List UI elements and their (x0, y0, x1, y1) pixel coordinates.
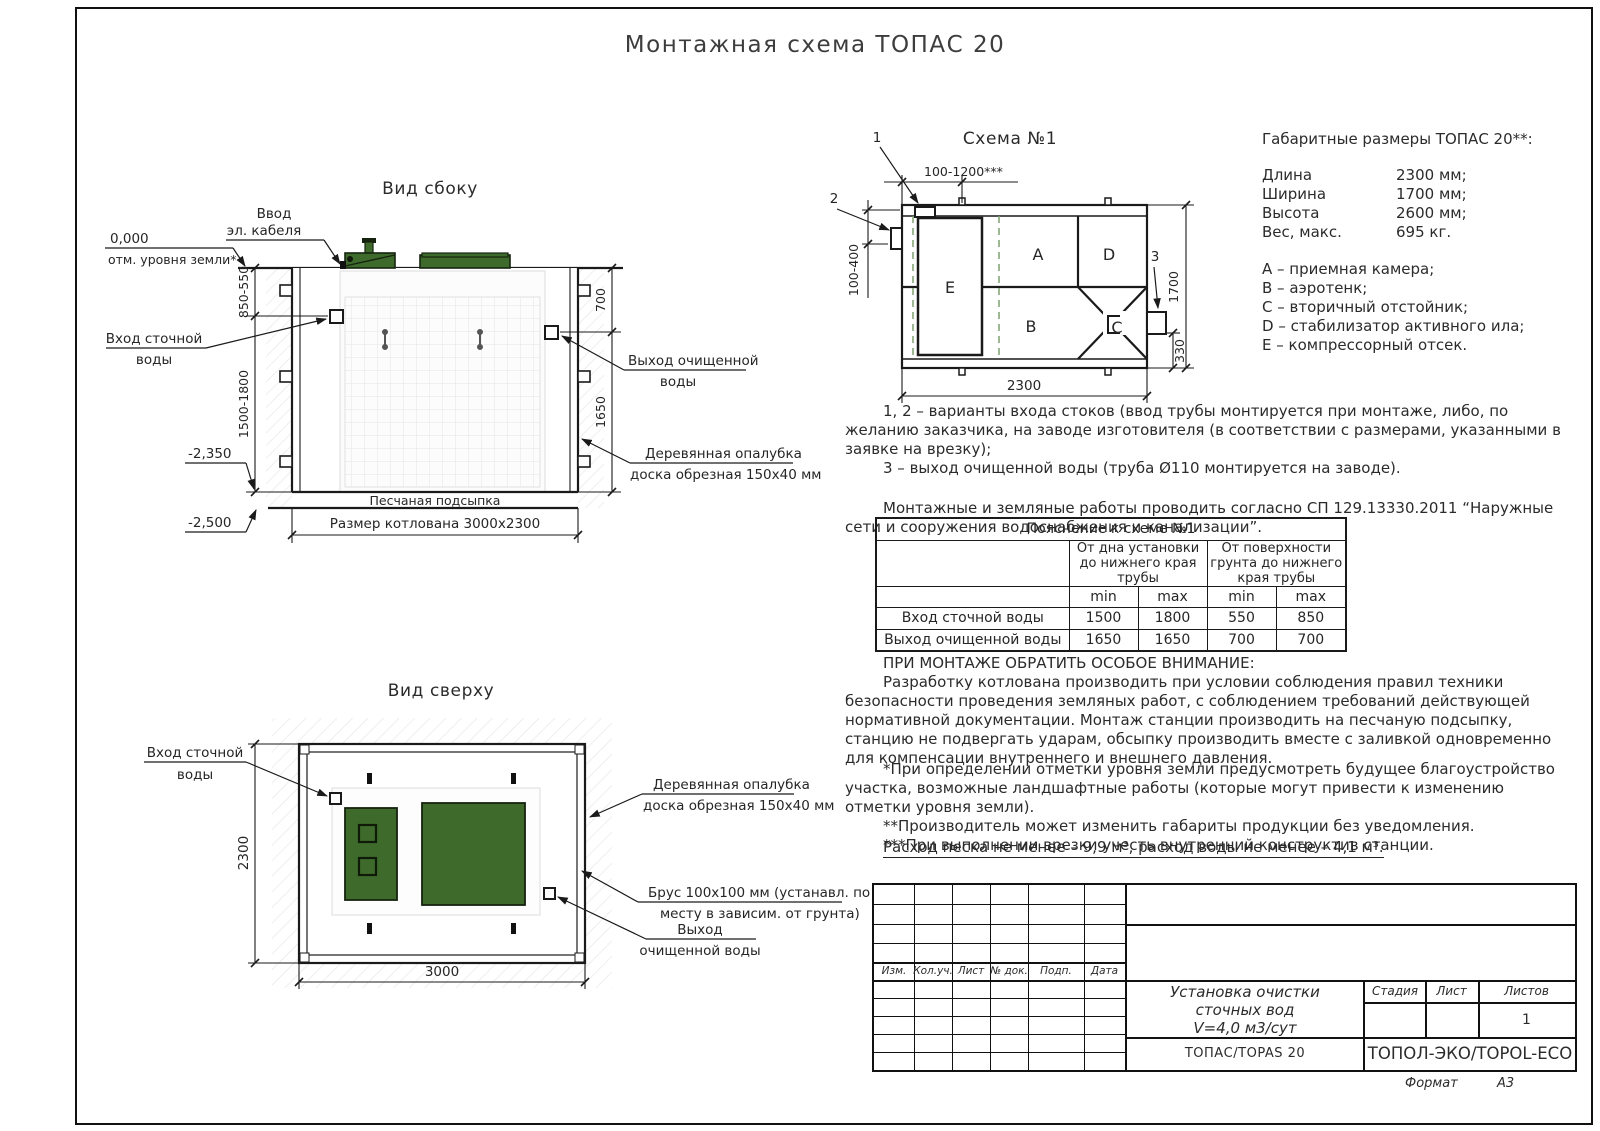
marker-3: 3 (1151, 249, 1160, 308)
svg-text:Ввод: Ввод (257, 206, 292, 222)
callout-formwork: Деревянная опалубка доска обрезная 150х4… (582, 439, 821, 483)
svg-text:2: 2 (830, 191, 839, 207)
attention-title: ПРИ МОНТАЖЕ ОБРАТИТЬ ОСОБОЕ ВНИМАНИЕ: (845, 654, 1565, 673)
explanation-table: Пояснение к схеме №1 От дна установки до… (875, 517, 1347, 652)
tank-lid-long-top (422, 803, 525, 905)
svg-text:доска обрезная 150х40 мм: доска обрезная 150х40 мм (643, 798, 834, 814)
overall-title: Габаритные размеры ТОПАС 20**: (1262, 130, 1572, 149)
tank-lid-small (340, 238, 395, 269)
drawing-sheet: Монтажная схема ТОПАС 20 Вид сбоку Вид с… (0, 0, 1600, 1131)
callout-cable-entry: Ввод эл. кабеля (226, 206, 340, 264)
svg-text:1: 1 (873, 130, 882, 146)
attention-block: ПРИ МОНТАЖЕ ОБРАТИТЬ ОСОБОЕ ВНИМАНИЕ: Ра… (845, 654, 1565, 768)
pit-size-label: Размер котлована 3000х2300 (330, 516, 540, 532)
stamp-company: ТОПОЛ-ЭКО/TOPOL-ECO (1365, 1037, 1575, 1070)
dim-outlet-330: 330 (1166, 329, 1187, 372)
compartment-c: C (1111, 318, 1122, 337)
table-row: Выход очищенной воды 1650 1650 700 700 (876, 629, 1346, 651)
stamp-header-list: Лист (952, 962, 990, 980)
level-2500-value: -2,500 (188, 515, 232, 531)
svg-text:эл. кабеля: эл. кабеля (227, 223, 301, 239)
tank-lid-small-top (345, 808, 397, 900)
overall-row: Высота2600 мм; (1262, 204, 1572, 223)
top-view-drawing: 2300 3000 Вход сточной воды Деревянная о… (100, 690, 840, 1020)
side-view-drawing: Песчаная подсыпка 850-5 (78, 175, 838, 565)
svg-text:Выход очищенной: Выход очищенной (628, 353, 759, 369)
tank-lid-long (420, 253, 510, 268)
svg-text:330: 330 (1172, 339, 1187, 363)
col-max: max (1138, 586, 1207, 607)
svg-text:Вход сточной: Вход сточной (147, 745, 244, 761)
inlet-variant-1 (915, 207, 935, 217)
svg-text:очищенной воды: очищенной воды (639, 943, 760, 959)
svg-text:100-1200***: 100-1200*** (924, 164, 1003, 179)
col-max: max (1276, 586, 1346, 607)
overall-row: Ширина1700 мм; (1262, 185, 1572, 204)
table-row: Вход сточной воды 1500 1800 550 850 (876, 607, 1346, 629)
schema-drawing: E A D B C 1 2 3 100-1200*** (820, 120, 1220, 410)
compartment-e: E (945, 278, 955, 297)
outlet-pipe-marker (544, 888, 555, 899)
footnote-2: **Производитель может изменить габариты … (845, 817, 1565, 836)
svg-text:3: 3 (1151, 249, 1160, 265)
marker-1: 1 (873, 130, 918, 203)
col-min: min (1069, 586, 1138, 607)
inlet-variant-2 (891, 228, 902, 249)
table-title: Пояснение к схеме №1 (876, 518, 1346, 540)
title-block: Изм. Кол.уч. Лист № док. Подп. Дата Уста… (872, 883, 1577, 1072)
svg-text:100-400: 100-400 (846, 244, 861, 296)
svg-text:Брус 100х100 мм (устанавл. по: Брус 100х100 мм (устанавл. по (648, 885, 870, 901)
tank-body (340, 271, 545, 492)
format-label: Формат (1405, 1076, 1458, 1091)
col-min: min (1207, 586, 1276, 607)
note-variants-1: 1, 2 – варианты входа стоков (ввод трубы… (845, 402, 1563, 459)
consumption-note: Расход песка не менее – 9,9 м³, расход в… (883, 838, 1384, 857)
svg-text:2300: 2300 (1007, 378, 1041, 394)
overall-row: Длина2300 мм; (1262, 166, 1572, 185)
dim-850-550: 850-550 (236, 266, 251, 318)
overall-dimensions-block: Габаритные размеры ТОПАС 20**: Длина2300… (1262, 130, 1572, 355)
svg-text:месту в зависим. от грунта): месту в зависим. от грунта) (660, 906, 860, 922)
svg-text:воды: воды (177, 767, 213, 783)
level-zero-value: 0,000 (110, 231, 149, 247)
stamp-header-podp: Подп. (1028, 962, 1084, 980)
stamp-header-koluch: Кол.уч. (914, 962, 952, 980)
dim-pit-size: Размер котлована 3000х2300 (288, 508, 582, 543)
level-zero: 0,000 отм. уровня земли* (105, 231, 245, 267)
svg-text:2300: 2300 (236, 836, 252, 870)
stamp-sheets-value: 1 (1478, 1002, 1575, 1037)
callout-beam: Брус 100х100 мм (устанавл. по месту в за… (582, 871, 870, 922)
callout-formwork: Деревянная опалубка доска обрезная 150х4… (590, 777, 834, 817)
footnote-1: *При определении отметки уровня земли пр… (845, 760, 1565, 817)
format-value: А3 (1497, 1076, 1514, 1091)
inlet-pipe-marker (330, 310, 343, 323)
svg-text:воды: воды (660, 374, 696, 390)
svg-text:воды: воды (136, 352, 172, 368)
overall-row: Вес, макс.695 кг. (1262, 223, 1572, 242)
svg-text:Деревянная опалубка: Деревянная опалубка (645, 446, 802, 462)
svg-text:Вход сточной: Вход сточной (106, 331, 203, 347)
dim-top: 100-1200*** (884, 164, 1018, 204)
svg-text:доска обрезная 150х40 мм: доска обрезная 150х40 мм (630, 467, 821, 483)
tank-section (891, 198, 1166, 375)
compartment-legend: А – приемная камера; В – аэротенк; С – в… (1262, 260, 1572, 355)
level-minus2500: -2,500 (185, 510, 256, 532)
stamp-doc-title: Установка очистки сточных вод V=4,0 м3/с… (1127, 982, 1363, 1037)
inlet-pipe-marker (330, 793, 341, 804)
compartment-a: A (1033, 245, 1044, 264)
stamp-sheets-label: Листов (1478, 980, 1575, 1002)
level-2350-value: -2,350 (188, 446, 232, 462)
note-variants-2: 3 – выход очищенной воды (труба Ø110 мон… (845, 459, 1563, 478)
page-title: Монтажная схема ТОПАС 20 (600, 32, 1030, 58)
outlet-pipe (1147, 312, 1166, 334)
compartment-d: D (1103, 245, 1115, 264)
svg-text:3000: 3000 (425, 964, 459, 980)
svg-text:Выход: Выход (677, 922, 723, 938)
svg-text:Деревянная опалубка: Деревянная опалубка (653, 777, 810, 793)
outlet-pipe-marker (545, 326, 558, 339)
dim-700: 700 (593, 288, 608, 312)
dim-bottom: 2300 (898, 368, 1151, 403)
table-group2: От поверхности грунта до нижнего края тр… (1207, 540, 1346, 586)
compartment-b: B (1026, 317, 1037, 336)
stamp-sheet-label: Лист (1425, 980, 1478, 1002)
svg-text:1700: 1700 (1166, 271, 1181, 303)
level-minus2350: -2,350 (185, 446, 254, 489)
stamp-stage-label: Стадия (1365, 980, 1425, 1002)
attention-body: Разработку котлована производить при усл… (845, 673, 1565, 768)
stamp-product: ТОПАС/TOPAS 20 (1127, 1037, 1363, 1070)
stamp-header-ndok: № док. (990, 962, 1028, 980)
sand-label: Песчаная подсыпка (370, 493, 501, 508)
dim-1650: 1650 (593, 396, 608, 428)
stamp-header-izm: Изм. (874, 962, 914, 980)
dim-1500-1800: 1500-1800 (236, 370, 251, 438)
stamp-header-data: Дата (1084, 962, 1125, 980)
level-zero-label: отм. уровня земли* (108, 252, 236, 267)
table-group1: От дна установки до нижнего края трубы (1069, 540, 1207, 586)
